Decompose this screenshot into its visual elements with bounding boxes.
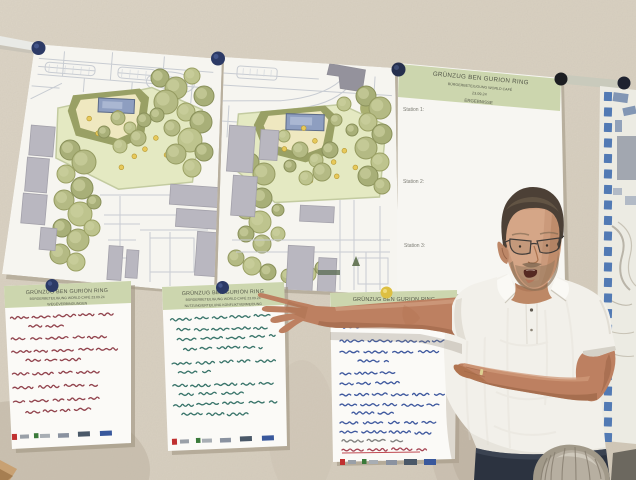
svg-text:Station 3:: Station 3: bbox=[404, 243, 425, 249]
svg-text:Station 2:: Station 2: bbox=[403, 179, 424, 185]
svg-text:Station 1:: Station 1: bbox=[403, 107, 424, 113]
